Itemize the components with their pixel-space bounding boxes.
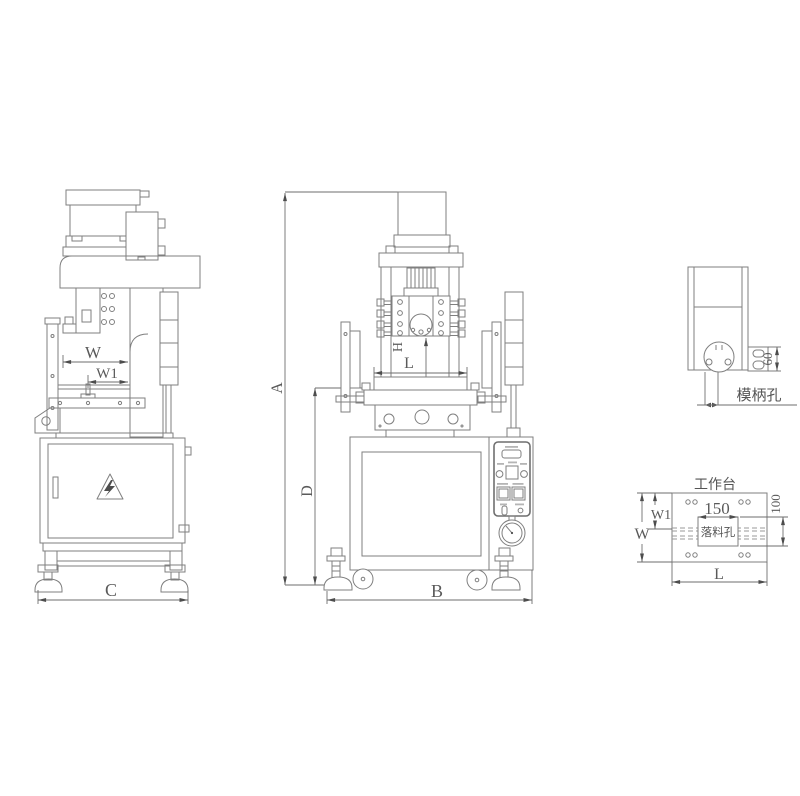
dim-w1-table: W1	[648, 493, 672, 529]
dim-100-label: 100	[768, 494, 783, 514]
worktable-detail: 工作台 落料孔 150 100	[634, 477, 788, 586]
leveling-foot-side-left	[35, 565, 62, 592]
dim-w-side: W	[63, 343, 128, 368]
electric-warning-icon	[97, 474, 123, 499]
base-frame-side	[43, 543, 182, 570]
dim-l-table-label: L	[714, 566, 724, 583]
ram-assembly-front	[377, 268, 465, 337]
control-panel	[494, 442, 530, 516]
c-frame-body	[60, 256, 200, 437]
leveling-foot-front-right	[492, 548, 520, 590]
air-cylinder-front	[379, 192, 463, 267]
dim-60-label: 60	[760, 353, 775, 366]
blanking-hole: 落料孔	[698, 517, 738, 546]
dim-150-label: 150	[704, 499, 730, 518]
signal-tower-front	[505, 292, 523, 437]
leveling-foot-front-left	[324, 548, 352, 590]
dim-c-label: C	[105, 580, 117, 600]
shank-hole-callout: 模柄孔	[697, 372, 797, 407]
electrical-cabinet-side	[40, 438, 191, 543]
guide-plate-side	[45, 318, 60, 430]
indicator-lamp-right	[521, 471, 528, 478]
dim-w1-side-label: W1	[96, 366, 118, 382]
front-view: A D	[269, 192, 533, 604]
technical-drawing-canvas: W W1	[0, 0, 800, 796]
dim-w-table: W	[634, 493, 672, 562]
power-button[interactable]	[502, 450, 521, 458]
shank-hole-label: 模柄孔	[736, 386, 781, 404]
selector-switch[interactable]	[506, 466, 518, 479]
dim-d-label: D	[299, 485, 316, 497]
toggle-switch[interactable]	[502, 506, 507, 515]
dim-w-side-label: W	[85, 343, 102, 362]
indicator-lamp-left	[496, 471, 503, 478]
side-view: W W1	[35, 190, 200, 604]
leveling-foot-side-right	[161, 565, 188, 592]
blanking-hole-label: 落料孔	[701, 525, 736, 539]
dim-l-table: L	[672, 562, 767, 586]
worktable-title: 工作台	[694, 477, 736, 493]
wheel-right	[467, 570, 487, 590]
bracket-right	[478, 322, 506, 412]
dim-l-front-label: L	[404, 355, 414, 372]
dim-150: 150	[698, 499, 738, 518]
keyhole	[518, 508, 523, 513]
bracket-left	[336, 322, 364, 412]
wheel-left	[353, 569, 373, 589]
bolts-left	[377, 299, 392, 337]
valve-box-icon	[126, 212, 165, 260]
dim-w1-table-label: W1	[651, 508, 671, 523]
dim-b-label: B	[431, 581, 443, 601]
dim-h-label: H	[391, 342, 406, 352]
cabinet-front	[350, 437, 533, 570]
table-front	[356, 377, 485, 437]
ram-slide-side	[63, 288, 115, 333]
dim-l-front: L	[374, 355, 467, 378]
dim-a-label: A	[269, 382, 286, 394]
bolts-right	[450, 299, 465, 337]
ram-detail: 60 模柄孔	[688, 267, 797, 407]
press-machine-drawing: W W1	[0, 0, 800, 796]
pressure-gauge	[499, 516, 525, 546]
dim-100: 100	[740, 494, 788, 546]
